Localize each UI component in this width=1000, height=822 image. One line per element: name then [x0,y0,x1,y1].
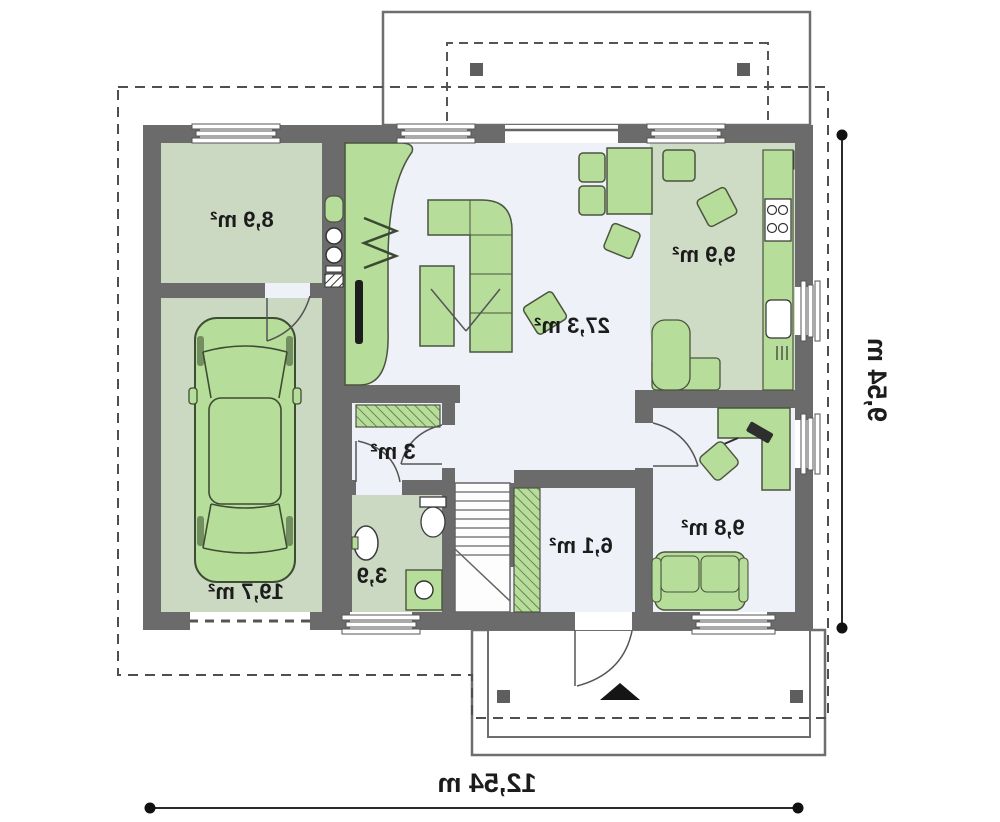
porch-post [497,690,510,703]
room-area-label-hall: 6,1 m² [549,533,613,558]
chair [579,186,605,215]
building: 27,3 m² 9,9 m² 8,9 m² 19,7 m² 3 m² 3,9 6… [143,124,820,686]
toilet-tank [420,497,446,507]
chair [579,153,605,182]
porch-post [790,690,803,703]
coffee-table [420,266,454,346]
terrace-door [505,125,618,143]
room-area-label-storage: 8,9 m² [210,207,274,232]
room-area-label-kitchen: 9,9 m² [672,242,736,267]
upper-terrace [383,12,810,128]
window [647,124,725,143]
floor-plan: 27,3 m² 9,9 m² 8,9 m² 19,7 m² 3 m² 3,9 6… [0,0,1000,822]
dimension-depth-label: 9,54 m [862,338,892,422]
window [192,124,280,143]
office-sofa [652,552,748,610]
tv-panel [355,280,363,344]
dimension-width-label: 12,54 m [437,768,536,798]
room-area-label-bathroom: 3,9 [357,563,388,588]
wardrobe-rail [356,405,440,427]
entrance-porch [472,630,825,755]
car [189,318,301,582]
hall-closet [514,488,540,612]
cooktop [765,199,791,241]
floor-plan-canvas: 27,3 m² 9,9 m² 8,9 m² 19,7 m² 3 m² 3,9 6… [0,0,1000,822]
terrace-post [470,63,483,76]
room-area-label-living: 27,3 m² [534,313,610,338]
room-area-label-office: 9,8 m² [681,515,745,540]
window [795,281,820,341]
window [692,612,775,634]
terrace-post [737,63,750,76]
toilet [421,507,445,537]
kitchen-sink [766,300,791,338]
garage-gate [190,612,310,630]
room-area-label-garage: 19,7 m² [208,579,284,604]
dimension-side: 9,54 m [837,130,893,634]
kitchen-counter [763,150,793,390]
window [795,414,820,474]
window [342,612,420,634]
dimension-bottom: 12,54 m [145,768,804,814]
dining-table [607,148,652,214]
room-area-label-wardrobe: 3 m² [370,439,415,464]
chair [663,150,695,181]
window [397,124,475,143]
